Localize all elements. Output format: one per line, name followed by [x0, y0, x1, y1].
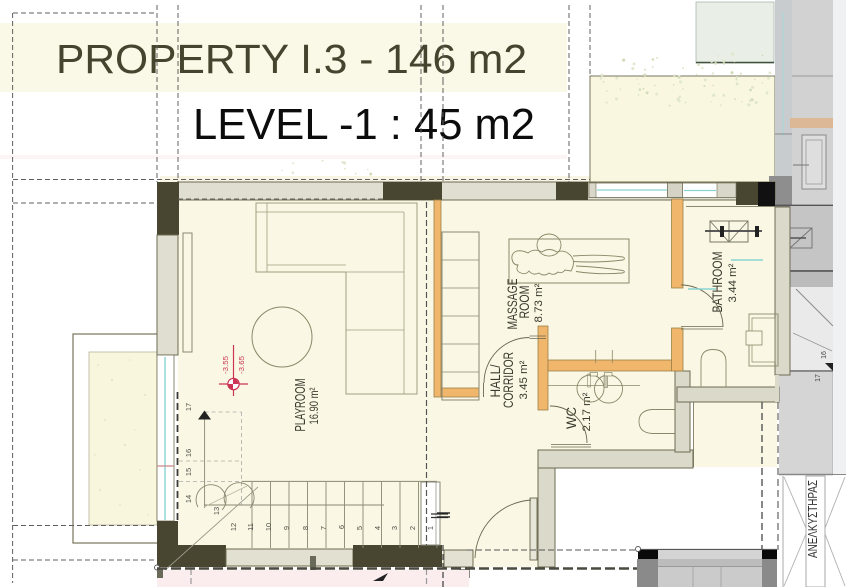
svg-text:7: 7 [319, 526, 328, 530]
svg-text:15: 15 [184, 468, 193, 476]
svg-text:12: 12 [229, 523, 238, 531]
svg-text:WC: WC [563, 407, 579, 429]
svg-text:14: 14 [184, 495, 193, 503]
svg-text:17: 17 [815, 374, 822, 382]
svg-text:3.44 m²: 3.44 m² [727, 263, 739, 302]
svg-text:4: 4 [373, 526, 382, 530]
svg-text:-3.55: -3.55 [221, 356, 230, 374]
svg-text:CORRIDOR: CORRIDOR [500, 352, 516, 408]
svg-text:6: 6 [337, 525, 346, 529]
svg-text:11: 11 [246, 523, 255, 531]
svg-text:13: 13 [212, 507, 221, 515]
svg-text:ROOM: ROOM [516, 286, 532, 319]
svg-text:8.73 m²: 8.73 m² [533, 283, 545, 322]
svg-text:16: 16 [184, 449, 193, 457]
svg-text:BATHROOM: BATHROOM [709, 252, 725, 313]
svg-text:-3.65: -3.65 [237, 356, 246, 374]
svg-text:3: 3 [390, 526, 399, 530]
svg-text:2: 2 [408, 526, 417, 530]
svg-text:5: 5 [355, 526, 364, 530]
svg-text:10: 10 [264, 523, 273, 531]
svg-text:9: 9 [282, 526, 291, 530]
svg-text:17: 17 [184, 403, 193, 411]
svg-text:1: 1 [426, 526, 435, 530]
svg-text:16.90 m²: 16.90 m² [307, 388, 321, 425]
svg-text:16: 16 [821, 351, 828, 359]
svg-text:3.45 m²: 3.45 m² [518, 360, 530, 399]
svg-text:PROPERTY I.3 - 146 m2: PROPERTY I.3 - 146 m2 [56, 36, 527, 82]
svg-text:ΑΝΕΛΚΥΣΤΗΡΑΣ: ΑΝΕΛΚΥΣΤΗΡΑΣ [805, 480, 820, 558]
svg-text:8: 8 [301, 526, 310, 530]
svg-text:LEVEL -1 : 45 m2: LEVEL -1 : 45 m2 [193, 100, 535, 149]
